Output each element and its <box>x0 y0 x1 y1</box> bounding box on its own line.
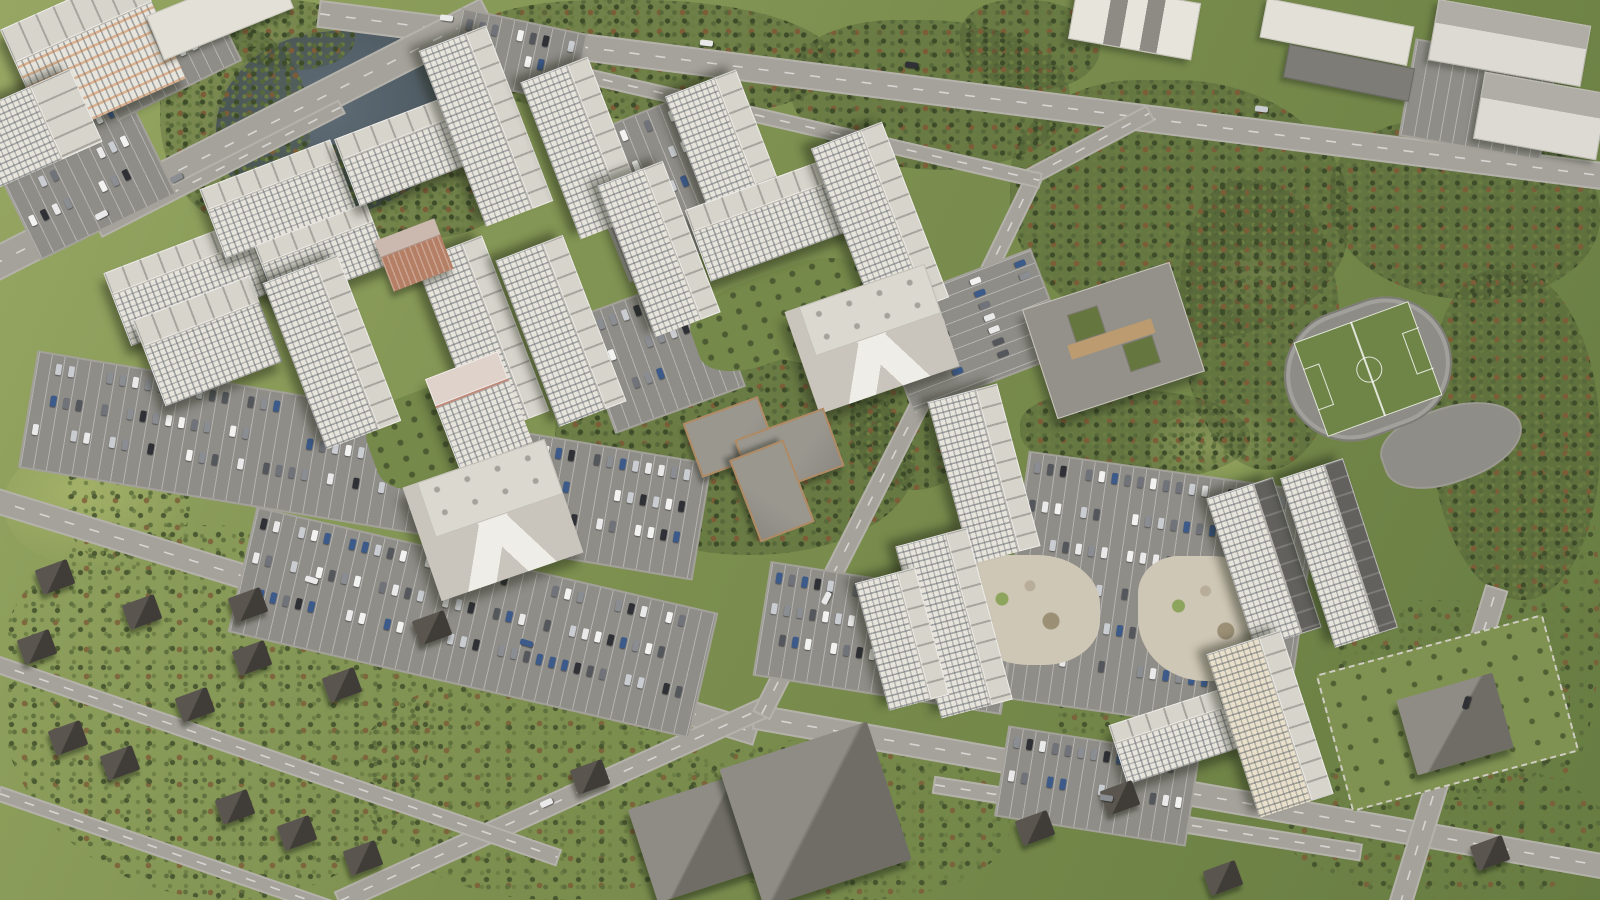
parked-car <box>1121 588 1128 600</box>
parked-car <box>221 392 229 404</box>
parked-car <box>788 574 796 586</box>
parked-car <box>358 612 366 624</box>
parked-car <box>326 473 334 485</box>
parked-car <box>644 643 652 655</box>
parked-car <box>1139 552 1146 564</box>
parked-car <box>152 412 160 424</box>
parked-car <box>1013 737 1021 749</box>
parked-car <box>1132 513 1139 525</box>
parked-car <box>606 456 614 468</box>
parked-car <box>974 288 986 298</box>
parked-car <box>510 648 518 660</box>
parked-car <box>345 609 353 621</box>
parked-car <box>830 643 838 655</box>
parked-car <box>680 175 690 187</box>
parked-car <box>357 446 365 458</box>
parked-car <box>1088 545 1095 557</box>
parked-car <box>606 634 614 646</box>
parked-car <box>619 458 627 470</box>
parked-car <box>306 438 314 450</box>
parked-car <box>165 414 173 426</box>
parked-car <box>491 24 499 36</box>
parked-car <box>399 550 407 562</box>
parked-car <box>1150 478 1157 490</box>
aerial-render-residential-complex <box>0 0 1600 900</box>
parked-car <box>639 494 647 506</box>
parked-car <box>1103 623 1110 635</box>
parked-car <box>352 478 360 490</box>
parked-car <box>647 527 655 539</box>
parked-car <box>1124 474 1131 486</box>
parked-car <box>608 521 616 533</box>
parked-car <box>1052 743 1060 755</box>
parked-car <box>564 588 572 600</box>
parked-car <box>529 32 537 44</box>
parked-car <box>383 618 391 630</box>
parked-car <box>791 637 799 649</box>
parked-car <box>275 465 283 477</box>
parked-car <box>614 600 622 612</box>
parked-car <box>847 615 855 627</box>
parked-car <box>668 145 678 157</box>
parked-car <box>1059 778 1067 790</box>
parked-car <box>657 646 665 658</box>
parked-car <box>555 447 563 459</box>
parked-car <box>1175 797 1183 809</box>
parked-car <box>51 203 61 216</box>
parked-car <box>344 444 352 456</box>
parked-car <box>121 439 129 451</box>
parked-car <box>459 636 467 648</box>
parked-car <box>353 575 361 587</box>
parked-car <box>378 482 386 494</box>
parked-car <box>1137 476 1144 488</box>
parked-car <box>132 377 140 389</box>
parked-car <box>843 645 851 657</box>
parked-car <box>70 430 78 442</box>
parked-car <box>391 584 399 596</box>
parked-car <box>594 631 602 643</box>
parked-car <box>632 460 640 472</box>
parked-car <box>75 399 83 411</box>
parked-car <box>535 653 543 665</box>
parked-car <box>632 640 640 652</box>
parked-car <box>1085 469 1092 481</box>
parked-car <box>1111 473 1118 485</box>
parked-car <box>1098 660 1105 672</box>
parked-car <box>645 462 653 474</box>
parked-car <box>1149 792 1157 804</box>
parked-car <box>49 169 59 182</box>
parked-car <box>678 614 686 626</box>
parked-car <box>1129 627 1136 639</box>
parked-car <box>361 541 369 553</box>
parked-car <box>596 518 604 530</box>
parked-car <box>1162 480 1169 492</box>
parked-car <box>778 635 786 647</box>
parked-car <box>340 572 348 584</box>
parked-car <box>323 533 331 545</box>
parked-car <box>295 598 303 610</box>
parked-car <box>643 371 652 383</box>
parked-car <box>1090 749 1098 761</box>
parked-car <box>178 416 186 428</box>
parked-car <box>62 397 70 409</box>
parked-car <box>505 610 513 622</box>
parked-car <box>147 443 155 455</box>
parked-car <box>856 647 864 659</box>
parked-car <box>126 408 134 420</box>
parked-car <box>599 668 607 680</box>
parked-car <box>969 276 981 286</box>
parked-car <box>827 580 835 592</box>
parked-car <box>770 602 778 614</box>
parked-car <box>562 481 570 493</box>
parked-car <box>203 421 211 433</box>
parked-car <box>1062 541 1069 553</box>
parked-car <box>242 427 250 439</box>
parked-car <box>209 389 217 401</box>
parked-car <box>1046 776 1054 788</box>
parked-car <box>518 613 526 625</box>
parked-car <box>1047 464 1054 476</box>
parked-car <box>992 337 1004 347</box>
parked-car <box>290 561 298 573</box>
parked-car <box>656 367 665 379</box>
parked-car <box>185 450 193 462</box>
parked-car <box>1175 482 1182 494</box>
parked-car <box>307 601 315 613</box>
parked-car <box>55 364 63 376</box>
parked-car <box>374 544 382 556</box>
parked-car <box>1149 667 1156 679</box>
parked-car <box>1075 543 1082 555</box>
parked-car <box>262 463 270 475</box>
parked-car <box>119 374 127 386</box>
parked-car <box>619 129 629 141</box>
parked-car <box>1162 795 1170 807</box>
parked-car <box>657 465 665 477</box>
parked-car <box>107 140 117 153</box>
parked-car <box>652 496 660 508</box>
parked-car <box>634 525 642 537</box>
parked-car <box>404 587 412 599</box>
parked-car <box>1116 625 1123 637</box>
parked-car <box>1026 739 1034 751</box>
parked-car <box>348 538 356 550</box>
parked-car <box>378 581 386 593</box>
parked-car <box>1144 515 1151 527</box>
parked-car <box>396 621 404 633</box>
parked-car <box>467 602 475 614</box>
parked-car <box>673 531 681 543</box>
parked-car <box>68 366 76 378</box>
parked-car <box>1034 462 1041 474</box>
parked-car <box>523 650 531 662</box>
parked-car <box>1126 551 1133 563</box>
parked-car <box>1157 517 1164 529</box>
parked-car <box>252 552 260 564</box>
parked-car <box>586 665 594 677</box>
parked-car <box>497 645 505 657</box>
parked-car <box>621 309 630 321</box>
parked-car <box>619 637 627 649</box>
parked-car <box>328 570 336 582</box>
parked-car <box>310 530 318 542</box>
parked-car <box>98 180 108 193</box>
parked-car <box>465 19 473 31</box>
parked-car <box>983 313 995 323</box>
parked-car <box>272 521 280 533</box>
parked-car <box>783 604 791 616</box>
parked-car <box>633 304 642 316</box>
parked-car <box>567 40 575 52</box>
parked-car <box>1136 666 1143 678</box>
parked-car <box>472 639 480 651</box>
parked-car <box>1080 506 1087 518</box>
parked-car <box>1049 540 1056 552</box>
parked-car <box>814 578 822 590</box>
parked-car <box>670 467 678 479</box>
parked-car <box>119 135 129 148</box>
parked-car <box>822 611 830 623</box>
parked-car <box>247 396 255 408</box>
parked-car <box>804 639 812 651</box>
parked-car <box>548 656 556 668</box>
parked-car <box>260 518 268 530</box>
parked-car <box>627 603 635 615</box>
parked-car <box>801 576 809 588</box>
parked-car <box>264 555 272 567</box>
parked-car <box>631 376 640 388</box>
parked-car <box>298 527 306 539</box>
parked-car <box>1196 522 1203 534</box>
parked-car <box>643 119 653 131</box>
parked-car <box>627 491 635 503</box>
parked-car <box>1060 465 1067 477</box>
parked-car <box>229 425 237 437</box>
parked-car <box>1041 501 1048 513</box>
parked-car <box>96 146 106 159</box>
parked-car <box>1188 483 1195 495</box>
parked-car <box>1039 741 1047 753</box>
parked-car <box>683 469 691 481</box>
parked-car <box>1064 745 1072 757</box>
parked-car <box>106 372 114 384</box>
parked-car <box>492 608 500 620</box>
parked-car <box>454 599 462 611</box>
parked-car <box>198 452 206 464</box>
parked-car <box>101 404 109 416</box>
parked-car <box>28 214 38 227</box>
parked-car <box>1014 259 1026 269</box>
parked-car <box>568 625 576 637</box>
parked-car <box>50 395 58 407</box>
parked-car <box>644 336 653 348</box>
parked-car <box>39 208 49 221</box>
parked-car <box>386 547 394 559</box>
parked-car <box>1201 485 1208 497</box>
parked-car <box>1054 503 1061 515</box>
parked-car <box>269 592 277 604</box>
parked-car <box>665 611 673 623</box>
parked-car <box>282 595 290 607</box>
parked-car <box>809 609 817 621</box>
parked-car <box>835 613 843 625</box>
parked-car <box>660 529 668 541</box>
parked-car <box>121 168 131 181</box>
parked-car <box>211 454 219 466</box>
suburb-house-17 <box>1203 860 1244 896</box>
parked-car <box>301 469 309 481</box>
parked-car <box>516 30 524 42</box>
parked-car <box>237 458 245 470</box>
parked-car <box>524 56 532 68</box>
parked-car <box>624 674 632 686</box>
parked-car <box>675 686 683 698</box>
parked-car <box>1077 747 1085 759</box>
parked-car <box>139 410 147 422</box>
parked-car <box>1021 772 1029 784</box>
parked-car <box>108 437 116 449</box>
parked-car <box>662 683 670 695</box>
parked-car <box>1170 519 1177 531</box>
parked-car <box>31 424 39 436</box>
parked-car <box>640 606 648 618</box>
parked-car <box>1103 751 1111 763</box>
parked-car <box>542 35 550 47</box>
parked-car <box>568 450 576 462</box>
parked-car <box>191 419 199 431</box>
parked-car <box>1183 521 1190 533</box>
parked-car <box>145 379 153 391</box>
parked-car <box>581 628 589 640</box>
parked-car <box>551 585 559 597</box>
parked-car <box>608 313 617 325</box>
parked-car <box>988 325 1000 335</box>
parked-car <box>83 433 91 445</box>
parked-car <box>561 659 569 671</box>
parked-car <box>37 174 47 187</box>
parked-car <box>1101 547 1108 559</box>
parked-car <box>593 454 601 466</box>
parked-car <box>997 349 1009 359</box>
parked-car <box>1008 770 1016 782</box>
parked-car <box>637 677 645 689</box>
parked-car <box>678 500 686 512</box>
parked-car <box>796 606 804 618</box>
parked-car <box>775 572 783 584</box>
parked-car <box>1098 471 1105 483</box>
parked-car <box>978 301 990 311</box>
parked-car <box>109 174 119 187</box>
parked-car <box>614 489 622 501</box>
parked-car <box>63 197 73 210</box>
parked-car <box>1019 271 1031 281</box>
parked-car <box>537 59 545 71</box>
parked-car <box>416 590 424 602</box>
parked-car <box>573 662 581 674</box>
parked-car <box>260 398 268 410</box>
parked-car <box>1093 508 1100 520</box>
parked-car <box>543 619 551 631</box>
parked-car <box>288 467 296 479</box>
parked-car <box>576 591 584 603</box>
parked-car <box>273 400 281 412</box>
parked-car <box>665 498 673 510</box>
parked-car <box>315 567 323 579</box>
